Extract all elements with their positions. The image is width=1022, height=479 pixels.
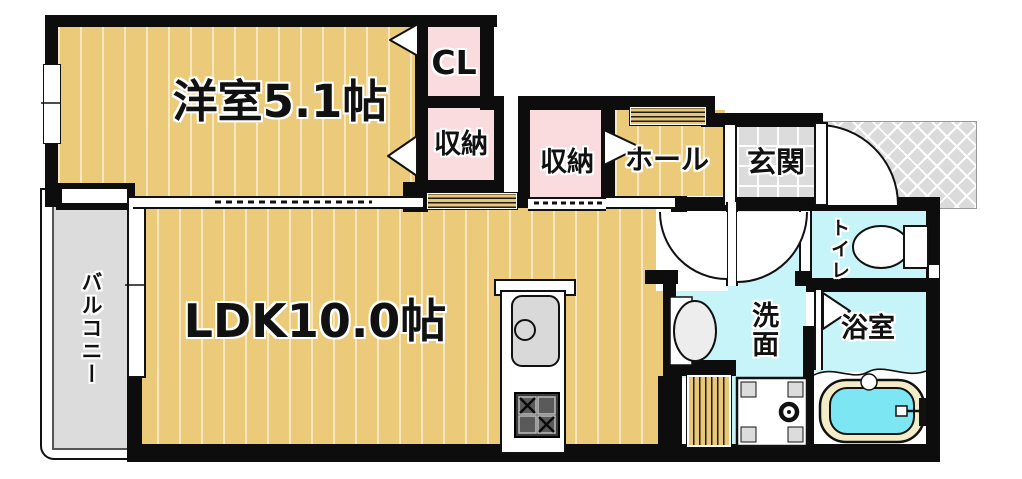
bathroom-label: 浴室 bbox=[830, 312, 906, 346]
storage-b-sliding-door bbox=[528, 197, 606, 211]
storage-a-louver-door bbox=[426, 192, 518, 210]
closet-label: CL bbox=[424, 44, 484, 82]
wall-top bbox=[45, 15, 497, 27]
hall-ldk-threshold bbox=[603, 196, 675, 209]
storage-b-label: 収納 bbox=[533, 146, 601, 180]
bedroom-balcony-window-glass bbox=[62, 189, 127, 203]
entrance-step-strip bbox=[723, 125, 737, 205]
balcony-label: バルコニー bbox=[74, 248, 108, 408]
washroom-label: 洗面 bbox=[742, 290, 782, 370]
wall-ldk-washroom-upper bbox=[663, 282, 676, 366]
bedroom-ldk-partition bbox=[133, 196, 423, 209]
toilet-door-stub bbox=[795, 271, 812, 286]
bathtub-zone bbox=[814, 372, 926, 446]
bedroom-west-window bbox=[43, 64, 61, 144]
hall-shoe-cabinet bbox=[629, 106, 707, 126]
washroom-louver-cabinet bbox=[686, 374, 732, 448]
floor-plan: 洋室5.1帖 CL 収納 収納 ホール 玄関 トイレ 洗面 浴室 LDK10.0… bbox=[0, 0, 1022, 479]
wall-void-right bbox=[518, 96, 530, 208]
entrance-label: 玄関 bbox=[740, 144, 812, 180]
toilet-label: トイレ bbox=[822, 212, 854, 286]
wall-ldk-washroom-lower bbox=[658, 376, 682, 450]
entrance-porch bbox=[818, 121, 977, 209]
storage-a-label: 収納 bbox=[427, 128, 495, 162]
bathroom-door bbox=[814, 290, 823, 370]
bedroom-label: 洋室5.1帖 bbox=[120, 72, 440, 132]
toilet-door bbox=[799, 211, 812, 274]
ldk-label: LDK10.0帖 bbox=[150, 290, 480, 352]
wall-entrance-top bbox=[701, 113, 823, 127]
wall-washroom-bath bbox=[803, 326, 814, 454]
hall-label: ホール bbox=[612, 142, 722, 178]
wall-bath-right bbox=[926, 292, 940, 455]
kitchen-counter bbox=[500, 290, 566, 454]
door-frame-divider bbox=[726, 202, 738, 286]
wall-south-of-entrance bbox=[683, 197, 940, 211]
ldk-balcony-window bbox=[127, 196, 146, 378]
